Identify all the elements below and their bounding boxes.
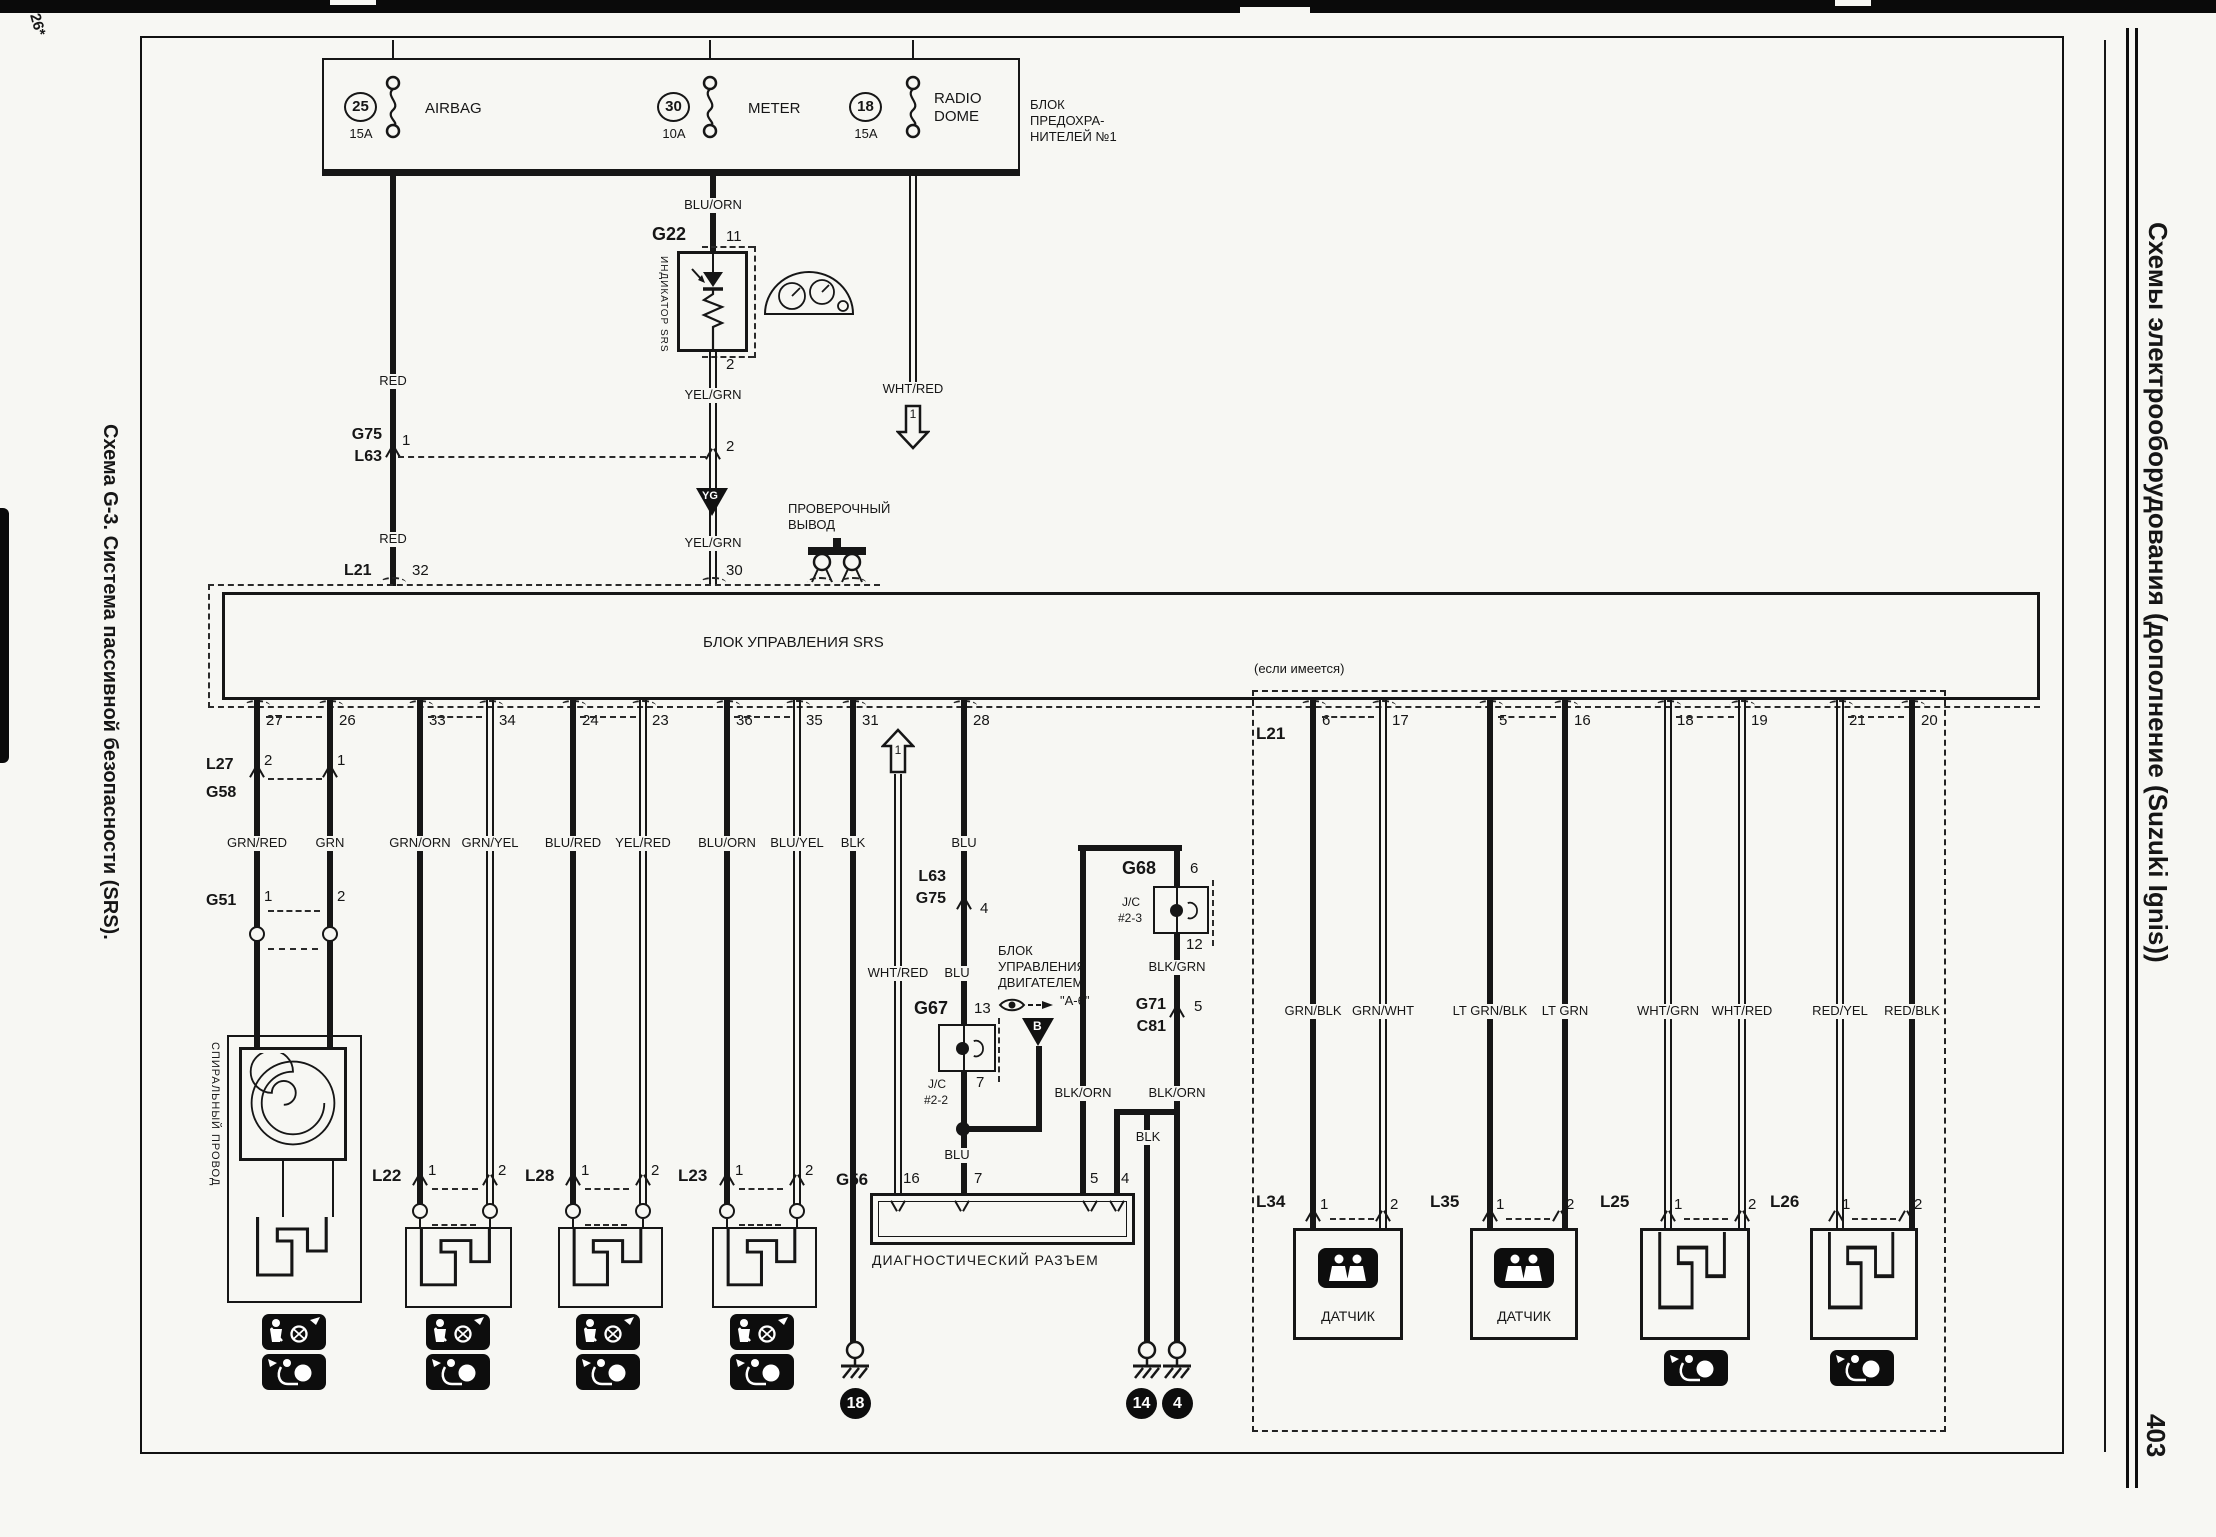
connector-ring <box>565 1203 581 1219</box>
wire <box>961 1126 1041 1132</box>
ground-badge: 18 <box>840 1388 871 1419</box>
pin-pair-link <box>580 716 636 718</box>
fuse-name: DOME <box>934 108 979 125</box>
airbag-warning-icon <box>262 1354 326 1390</box>
pin-number: 13 <box>974 1000 991 1017</box>
sensor-occupants-icon <box>1492 1246 1556 1290</box>
wire-color-label: BLU <box>941 1148 972 1163</box>
connector-fork <box>1109 1200 1125 1211</box>
connector-dashed-link <box>1330 1218 1374 1220</box>
connector-dashed-link <box>585 1224 627 1226</box>
fuse-number-badge: 30 <box>657 92 690 122</box>
sidebar-rule <box>2126 28 2129 1488</box>
wire <box>709 40 711 58</box>
pin-number: 4 <box>1121 1170 1129 1187</box>
wire <box>726 1219 728 1227</box>
pin-pair-link <box>428 716 482 718</box>
wire <box>961 700 967 1193</box>
connector-label-c81: C81 <box>1122 1018 1166 1036</box>
connector-label-g75: G75 <box>330 426 382 444</box>
dashed-edge <box>998 1018 1000 1082</box>
wire-color-label: RED <box>376 532 409 547</box>
wire <box>1144 1112 1150 1342</box>
wire-color-label: BLK/GRN <box>1145 960 1208 975</box>
wire-color-label: BLK <box>1133 1130 1164 1145</box>
wire <box>417 700 423 1206</box>
pin-number: 1 <box>337 752 345 769</box>
wire <box>489 1219 491 1227</box>
connector-label-l25: L25 <box>1600 1192 1629 1212</box>
pin-pair-link <box>266 716 322 718</box>
sensor-occupants-icon <box>1316 1246 1380 1290</box>
wire <box>793 700 801 1206</box>
wire-color-label: GRN/WHT <box>1349 1004 1417 1019</box>
connector-ring <box>412 1203 428 1219</box>
component-label-g67: G67 <box>914 998 948 1019</box>
connector-fork <box>719 1174 735 1185</box>
connector-fork <box>1734 1210 1750 1221</box>
diagnostic-connector-label: ДИАГНОСТИЧЕСКИЙ РАЗЪЕМ <box>872 1252 1099 1268</box>
fuse-number-badge: 18 <box>849 92 882 122</box>
connector-dashed-link <box>1852 1218 1896 1220</box>
connector-label-l63: L63 <box>902 868 946 886</box>
pin-number: 5 <box>1090 1170 1098 1187</box>
pin-number: 2 <box>726 356 734 373</box>
wire <box>850 700 856 1344</box>
dashed-edge <box>1212 880 1214 946</box>
airbag-warning-icon <box>1830 1350 1894 1386</box>
jc-label: J/C <box>928 1078 946 1092</box>
pin-pair-link <box>1322 716 1374 718</box>
pin-number: 28 <box>973 712 990 729</box>
fuse-box-label: ПРЕДОХРА- <box>1030 114 1105 129</box>
wire <box>254 700 260 1047</box>
connector-fork <box>1828 1210 1844 1221</box>
connector-fork <box>1082 1200 1098 1211</box>
fuse-name: METER <box>748 100 801 117</box>
wire-color-label: BLU <box>941 966 972 981</box>
squib-icon <box>714 1229 815 1306</box>
pin-number: 17 <box>1392 712 1409 729</box>
pin-number: 2 <box>337 888 345 905</box>
airbag-warning-icon <box>426 1354 490 1390</box>
jc-label: J/C <box>1122 896 1140 910</box>
b-splice-label: B <box>1033 1020 1042 1034</box>
wire <box>1836 700 1844 1228</box>
instrument-cluster-icon <box>762 268 857 316</box>
page-number: 403 <box>2140 1414 2171 1457</box>
spiral-cable-label: СПИРАЛЬНЫЙ ПРОВОД <box>209 1042 221 1186</box>
wire <box>639 700 647 1206</box>
connector-fork <box>890 1200 906 1211</box>
wire-color-label: BLU/ORN <box>695 836 759 851</box>
wire <box>642 1219 644 1227</box>
squib-icon <box>243 1217 347 1297</box>
wire-color-label: RED/BLK <box>1881 1004 1943 1019</box>
wire-color-label: LT GRN <box>1539 1004 1591 1019</box>
seatbelt-warning-icon <box>262 1314 326 1350</box>
wire <box>1174 1112 1180 1342</box>
wire-color-label: GRN/RED <box>224 836 290 851</box>
fuse-amps: 15A <box>854 127 877 142</box>
srs-control-unit-label: БЛОК УПРАВЛЕНИЯ SRS <box>703 634 884 651</box>
test-terminal-label: ВЫВОД <box>788 518 835 533</box>
connector-fork <box>412 1174 428 1185</box>
pin-number: 30 <box>726 562 743 579</box>
pin-number: 2 <box>1390 1196 1398 1213</box>
airbag-warning-icon <box>1664 1350 1728 1386</box>
pin-number: 2 <box>1914 1196 1922 1213</box>
junction-hook-icon <box>972 1038 986 1060</box>
wire-color-label: BLK/ORN <box>1051 1086 1114 1101</box>
wire <box>1379 700 1387 1228</box>
connector-dashed-link <box>585 1188 629 1190</box>
pin-number: 35 <box>806 712 823 729</box>
fuse-amps: 15A <box>349 127 372 142</box>
scan-notch <box>1835 0 1871 6</box>
led-resistor-icon <box>684 254 742 349</box>
wire <box>912 40 914 58</box>
pin-bump <box>700 577 726 588</box>
pin-number: 2 <box>498 1162 506 1179</box>
fuse-box-label: БЛОК <box>1030 98 1065 113</box>
pin-number: 31 <box>862 712 879 729</box>
scan-notch <box>1240 7 1310 13</box>
connector-fork <box>1305 1210 1321 1221</box>
junction-dot <box>956 1042 969 1055</box>
wire <box>796 1219 798 1227</box>
yg-splice-label: YG <box>702 490 718 503</box>
pin-number: 26 <box>339 712 356 729</box>
pin-number: 1 <box>735 1162 743 1179</box>
pin-number: 23 <box>652 712 669 729</box>
left-sidebar-title: Схема G-3. Система пассивной безопасност… <box>98 424 121 940</box>
wire-color-label: YEL/RED <box>612 836 674 851</box>
connector-label-g71: G71 <box>1122 996 1166 1014</box>
connector-label-l63: L63 <box>330 448 382 466</box>
ground-icon <box>1159 1340 1195 1384</box>
pin-number: 2 <box>726 438 734 455</box>
pin-number: 34 <box>499 712 516 729</box>
fuse-number-badge: 25 <box>344 92 377 122</box>
connector-label-l21-right: L21 <box>1256 724 1285 744</box>
jc-label: #2-3 <box>1118 912 1142 926</box>
connector-ring <box>249 926 265 942</box>
connector-fork <box>1482 1210 1498 1221</box>
pin-bump <box>380 577 406 588</box>
wire-bus <box>1078 845 1182 851</box>
eye-reference-icon <box>998 996 1056 1014</box>
connector-dashed-link <box>739 1188 783 1190</box>
scanned-wiring-diagram-page: 26* Схема G-3. Система пассивной безопас… <box>0 0 2216 1537</box>
srs-control-unit-box <box>222 592 2040 700</box>
wire-color-label: LT GRN/BLK <box>1450 1004 1531 1019</box>
pin-number: 12 <box>1186 936 1203 953</box>
test-terminal-label: ПРОВЕРОЧНЫЙ <box>788 502 890 517</box>
connector-fork <box>1660 1210 1676 1221</box>
pin-number: 5 <box>1194 998 1202 1015</box>
pin-number: 5 <box>1499 712 1507 729</box>
sensor-label: ДАТЧИК <box>1321 1308 1375 1324</box>
connector-label-l34: L34 <box>1256 1192 1285 1212</box>
wire <box>282 1161 284 1217</box>
wire-color-label: GRN/YEL <box>458 836 521 851</box>
wire-color-label: WHT/GRN <box>1634 1004 1702 1019</box>
connector-label-l22: L22 <box>372 1166 401 1186</box>
connector-fork <box>1375 1210 1391 1221</box>
ground-badge: 4 <box>1162 1388 1193 1419</box>
pin-number: 21 <box>1849 712 1866 729</box>
scan-blob <box>0 508 9 763</box>
right-sidebar-title: Схемы электрооборудования (дополнение (S… <box>2142 222 2173 963</box>
wire <box>1036 1046 1042 1132</box>
wire <box>1738 700 1746 1228</box>
connector-fork <box>1169 1006 1185 1017</box>
pin-number: 1 <box>1320 1196 1328 1213</box>
srs-indicator-label: ИНДИКАТОР SRS <box>658 256 669 353</box>
wire-color-label: RED/YEL <box>1809 1004 1871 1019</box>
wire-color-label: BLU <box>948 836 979 851</box>
wire <box>1664 700 1672 1228</box>
pin-number: 16 <box>1574 712 1591 729</box>
pin-number: 1 <box>402 432 410 449</box>
wire-color-label: YEL/GRN <box>681 536 744 551</box>
wire-whtred <box>909 176 917 388</box>
connector-label-l23: L23 <box>678 1166 707 1186</box>
pin-number: 33 <box>429 712 446 729</box>
sidebar-rule <box>2135 28 2138 1488</box>
connector-ring <box>482 1203 498 1219</box>
connector-ring <box>635 1203 651 1219</box>
wire <box>1487 700 1493 1228</box>
pin-number: 32 <box>412 562 429 579</box>
wire-bluorn <box>710 176 716 251</box>
connector-fork <box>635 1174 651 1185</box>
connector-dashed-link <box>268 948 318 950</box>
connector-ring <box>322 926 338 942</box>
pin-number: 4 <box>980 900 988 917</box>
connector-fork <box>1552 1210 1568 1221</box>
pin-number: 1 <box>264 888 272 905</box>
wire-color-label: BLK/ORN <box>1145 1086 1208 1101</box>
wire <box>724 700 730 1206</box>
connector-dashed-link <box>268 778 322 780</box>
pin-number: 36 <box>736 712 753 729</box>
fuse-name: AIRBAG <box>425 100 482 117</box>
pin-number: 19 <box>1751 712 1768 729</box>
ground-badge: 14 <box>1126 1388 1157 1419</box>
fuse-icon <box>901 74 925 140</box>
connector-dashed-link <box>398 456 706 458</box>
connector-fork <box>956 898 972 909</box>
airbag-warning-icon <box>576 1354 640 1390</box>
engine-ecu-label: ДВИГАТЕЛЕМ <box>998 976 1083 991</box>
wire-color-label: BLU/ORN <box>681 198 745 213</box>
connector-dashed-link <box>432 1188 478 1190</box>
l21-dashed-left <box>208 584 210 708</box>
component-label-g22: G22 <box>652 224 686 245</box>
connector-fork <box>789 1174 805 1185</box>
pin-number: 24 <box>582 712 599 729</box>
wire-bus <box>1174 848 1180 888</box>
connector-dashed-link <box>739 1224 781 1226</box>
wire-color-label: BLU/RED <box>542 836 604 851</box>
seatbelt-warning-icon <box>730 1314 794 1350</box>
connector-ring <box>719 1203 735 1219</box>
corner-mark: 26* <box>26 11 49 37</box>
pin-number: 27 <box>266 712 283 729</box>
connector-ref-number: 1 <box>910 408 917 422</box>
airbag-warning-icon <box>730 1354 794 1390</box>
wire <box>392 40 394 58</box>
sensor-label: ДАТЧИК <box>1497 1308 1551 1324</box>
connector-ring <box>789 1203 805 1219</box>
wire <box>894 774 902 1193</box>
connector-label-l21: L21 <box>344 562 372 580</box>
wire-color-label: WHT/RED <box>880 382 947 397</box>
pin-pair-link <box>1498 716 1556 718</box>
pin-number: 2 <box>651 1162 659 1179</box>
pin-pair-link <box>1676 716 1734 718</box>
wire <box>1114 1112 1120 1193</box>
wire <box>1909 700 1915 1228</box>
wire-color-label: WHT/RED <box>1709 1004 1776 1019</box>
dashed-edge <box>702 246 754 248</box>
if-equipped-note: (если имеется) <box>1254 662 1344 677</box>
connector-fork <box>705 448 721 459</box>
connector-fork <box>322 766 338 777</box>
connector-label-l28: L28 <box>525 1166 554 1186</box>
connector-dashed-link <box>268 910 320 912</box>
fuse-icon <box>381 74 405 140</box>
connector-fork <box>565 1174 581 1185</box>
wire <box>1562 700 1568 1228</box>
connector-fork <box>1898 1210 1914 1221</box>
pin-number: 11 <box>726 228 742 245</box>
component-label-g68: G68 <box>1122 858 1156 879</box>
pin-number: 16 <box>903 1170 920 1187</box>
wire <box>572 1219 574 1227</box>
pin-number: 2 <box>805 1162 813 1179</box>
wire-color-label: GRN <box>313 836 348 851</box>
pin-number: 18 <box>1677 712 1694 729</box>
wire-color-label: RED <box>376 374 409 389</box>
connector-fork <box>482 1174 498 1185</box>
wire <box>1310 700 1316 1228</box>
engine-ecu-label: УПРАВЛЕНИЯ <box>998 960 1086 975</box>
l21-dashed-top <box>208 584 880 586</box>
fuse-icon <box>698 74 722 140</box>
pin-number: 1 <box>428 1162 436 1179</box>
pin-number: 6 <box>1322 712 1330 729</box>
fuse-name: RADIO <box>934 90 982 107</box>
connector-label-g75b: G75 <box>902 890 946 908</box>
connector-ref-number: 1 <box>895 744 902 758</box>
connector-fork <box>954 1200 970 1211</box>
connector-label-l26: L26 <box>1770 1192 1799 1212</box>
wire <box>419 1219 421 1227</box>
wire-color-label: GRN/BLK <box>1281 1004 1344 1019</box>
sidebar-rule <box>2104 40 2106 1452</box>
pin-pair-link <box>1848 716 1904 718</box>
wire-bus <box>1080 848 1086 1193</box>
fuse-box-label: НИТЕЛЕЙ №1 <box>1030 130 1117 145</box>
ground-icon <box>837 1340 873 1384</box>
wire-color-label: WHT/RED <box>865 966 932 981</box>
wire-color-label: BLK <box>838 836 869 851</box>
squib-icon <box>1816 1232 1912 1336</box>
pin-number: 20 <box>1921 712 1938 729</box>
junction-hook-icon <box>1186 900 1200 922</box>
spiral-icon <box>247 1053 339 1153</box>
pin-pair-link <box>734 716 790 718</box>
connector-fork <box>249 766 265 777</box>
pin-number: 2 <box>264 752 272 769</box>
wire <box>570 700 576 1206</box>
fuse-amps: 10A <box>662 127 685 142</box>
wire-color-label: GRN/ORN <box>386 836 453 851</box>
wire <box>327 700 333 1047</box>
connector-dashed-link <box>1506 1218 1550 1220</box>
wire-color-label: BLU/YEL <box>767 836 826 851</box>
connector-label-g51: G51 <box>206 892 236 910</box>
wire-color-label: YEL/GRN <box>681 388 744 403</box>
squib-icon <box>1646 1232 1744 1336</box>
pin-number: 7 <box>974 1170 982 1187</box>
wire <box>486 700 494 1206</box>
connector-label-g58: G58 <box>206 784 236 802</box>
connector-label-l27: L27 <box>206 756 234 774</box>
connector-label-g56: G56 <box>836 1170 868 1190</box>
pin-number: 1 <box>581 1162 589 1179</box>
connector-label-l35: L35 <box>1430 1192 1459 1212</box>
wire <box>332 1161 334 1217</box>
seatbelt-warning-icon <box>576 1314 640 1350</box>
squib-icon <box>560 1229 661 1306</box>
engine-ecu-label: БЛОК <box>998 944 1033 959</box>
pin-number: 7 <box>976 1074 984 1091</box>
pin-number: 6 <box>1190 860 1198 877</box>
pin-bump <box>840 577 866 588</box>
junction-dot <box>1170 904 1183 917</box>
connector-dashed-link <box>1684 1218 1728 1220</box>
jc-label: #2-2 <box>924 1094 948 1108</box>
scan-notch <box>330 0 376 5</box>
pin-bump <box>807 577 833 588</box>
squib-icon <box>407 1229 510 1306</box>
seatbelt-warning-icon <box>426 1314 490 1350</box>
dashed-edge <box>754 246 756 358</box>
connector-dashed-link <box>432 1224 476 1226</box>
